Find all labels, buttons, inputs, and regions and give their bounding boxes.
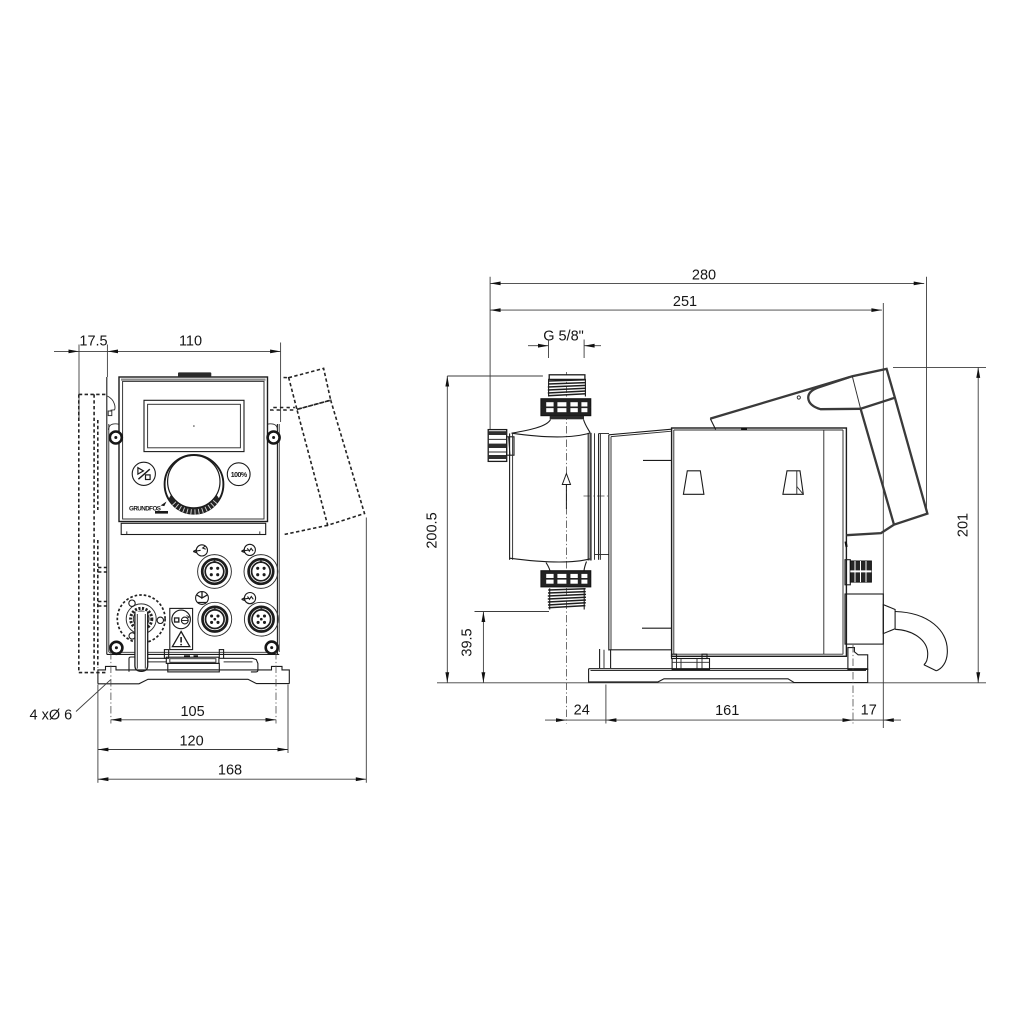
svg-text:24: 24 (574, 703, 590, 719)
svg-text:G 5/8": G 5/8" (543, 329, 584, 345)
svg-text:39.5: 39.5 (460, 628, 476, 656)
svg-text:110: 110 (179, 334, 202, 350)
svg-text:105: 105 (180, 704, 204, 720)
svg-text:200.5: 200.5 (425, 512, 441, 548)
svg-text:161: 161 (715, 703, 739, 719)
svg-text:120: 120 (179, 734, 203, 750)
svg-text:17.5: 17.5 (79, 334, 107, 350)
svg-text:168: 168 (218, 763, 242, 779)
svg-text:251: 251 (673, 294, 697, 310)
svg-text:17: 17 (861, 703, 877, 719)
svg-text:100%: 100% (231, 472, 248, 479)
svg-text:201: 201 (955, 513, 971, 537)
svg-text:4 xØ 6: 4 xØ 6 (30, 708, 73, 724)
svg-text:280: 280 (692, 268, 716, 284)
